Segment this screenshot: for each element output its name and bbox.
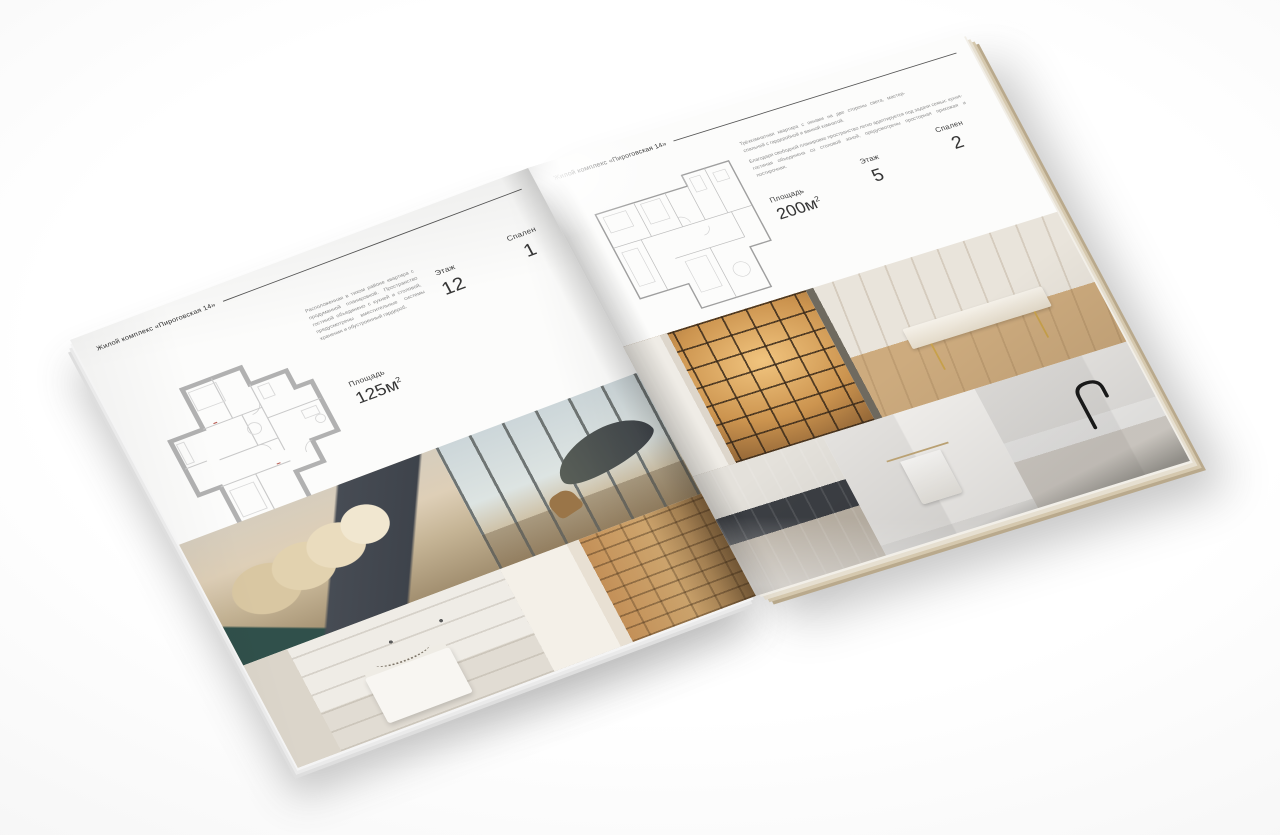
towel-shape xyxy=(900,450,962,505)
brochure-mockup-scene: Жилой комплекс «Пироговская 14» Трёхкомн… xyxy=(0,0,1280,835)
left-header-title: Жилой комплекс «Пироговская 14» xyxy=(95,301,217,352)
left-bedrooms-spec: Спален 1 xyxy=(492,220,563,270)
black-faucet-shape xyxy=(1053,358,1146,443)
left-area-spec: Площадь 125м2 xyxy=(347,364,407,409)
desk-shape xyxy=(903,286,1052,349)
right-floor-spec: Этаж 5 xyxy=(841,147,909,193)
right-area-spec: Площадь 200м2 xyxy=(768,183,826,224)
chaise-lounge-shape xyxy=(545,406,661,494)
left-description: Расположенная в тихом районе квартира с … xyxy=(304,268,430,343)
